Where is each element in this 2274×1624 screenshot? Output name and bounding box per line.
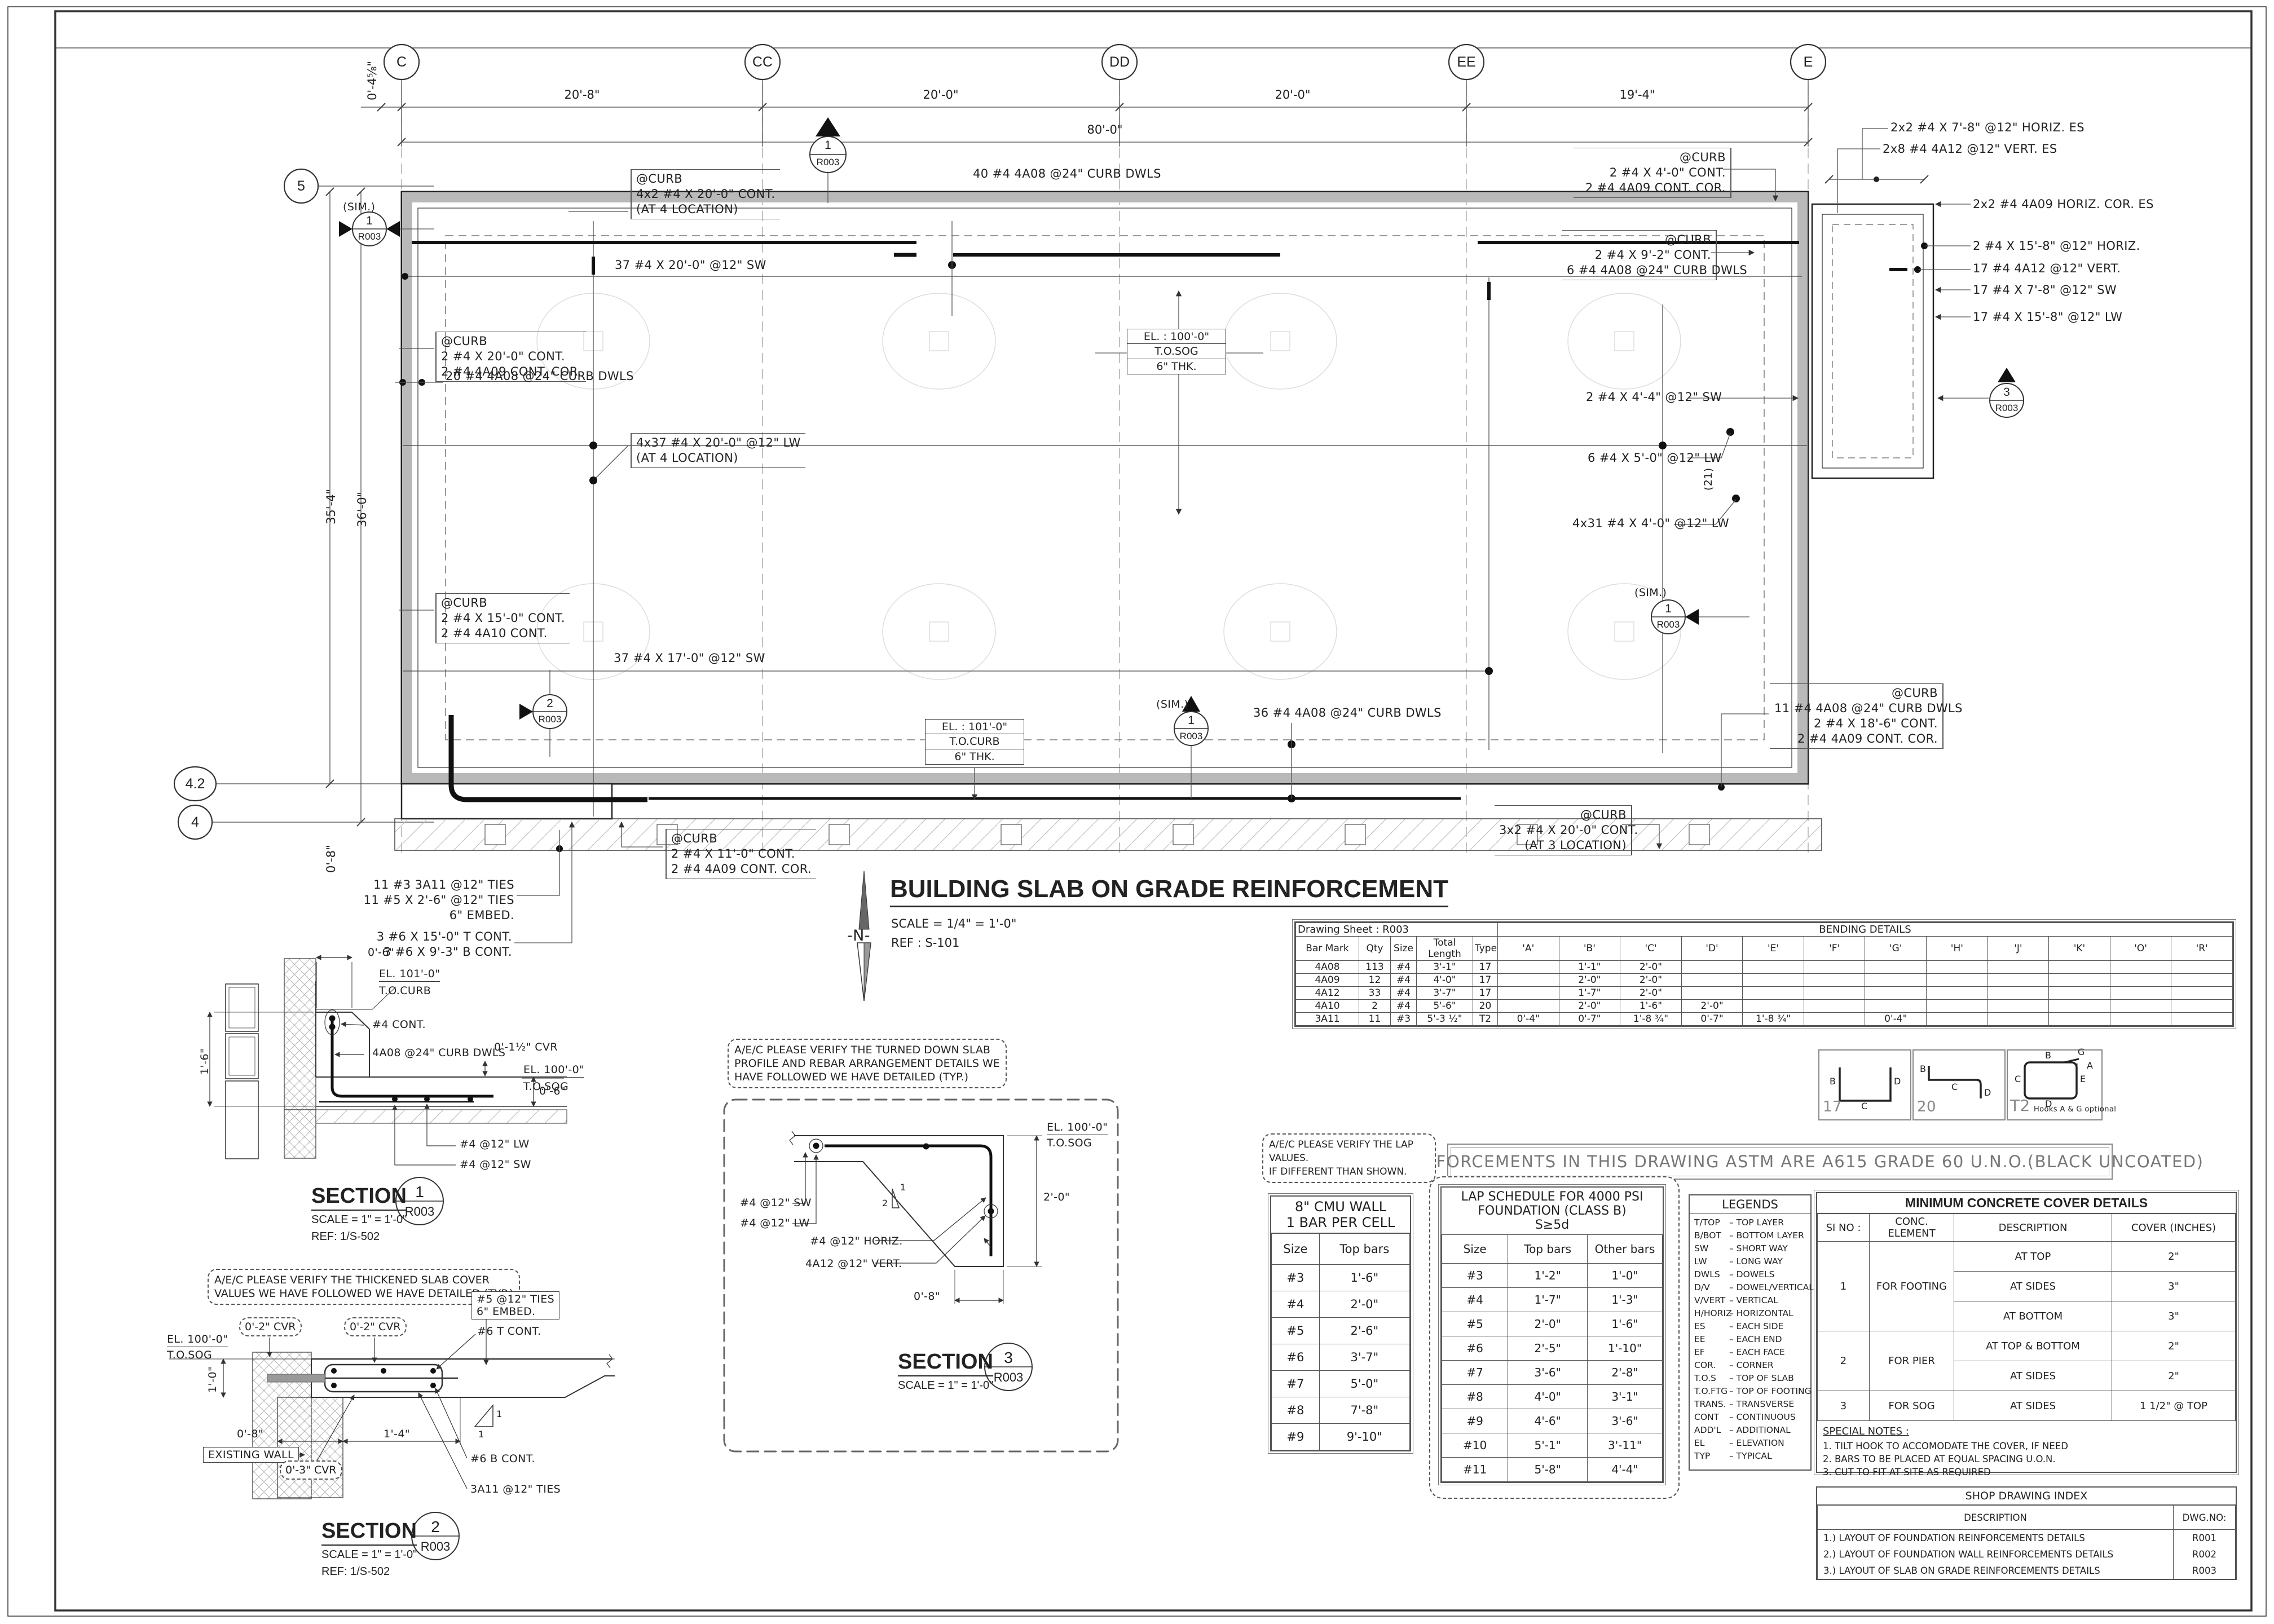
table-row: #42'-0" <box>1272 1291 1410 1318</box>
special-notes-list: 1. TILT HOOK TO ACCOMODATE THE COVER, IF… <box>1823 1440 2230 1479</box>
el-tocurb-box: EL. : 101'-0"T.O.CURB6" THK. <box>925 720 1024 765</box>
s1-dwls: 4A08 @24" CURB DWLS <box>372 1047 505 1059</box>
dim-bay-4: 19'-4" <box>1603 88 1671 101</box>
bend20-d: D <box>1984 1087 1991 1098</box>
table-row: #63'-7" <box>1272 1344 1410 1371</box>
s3-cloud-note: A/E/C PLEASE VERIFY THE TURNED DOWN SLAB… <box>728 1039 1007 1088</box>
note-sw-17: 17 #4 X 7'-8" @12" SW <box>1973 283 2117 297</box>
bending-header-cell: 'A' <box>1498 937 1559 961</box>
section1-num: 1 <box>412 1183 428 1201</box>
column-marks <box>537 293 1681 679</box>
s2-tcont: #6 T CONT. <box>477 1325 541 1338</box>
bend17-d: D <box>1894 1076 1901 1087</box>
s2-el2: T.O.SOG <box>167 1349 212 1361</box>
list-item: CONT– CONTINUOUS <box>1694 1411 1806 1424</box>
list-item: EF– EACH FACE <box>1694 1346 1806 1359</box>
flag-sim-l-num: 1 <box>362 214 377 228</box>
flag2-num: 2 <box>542 697 558 710</box>
note-curb-bottom: @CURB3x2 #4 X 20'-0" CONT.(AT 3 LOCATION… <box>1495 805 1632 855</box>
note-curb-top-left: @CURB4x2 #4 X 20'-0" CONT.(AT 4 LOCATION… <box>631 169 780 219</box>
table-row: #84'-0"3'-1" <box>1442 1385 1663 1409</box>
bendt2-e: E <box>2080 1074 2086 1084</box>
table-row: 2.) LAYOUT OF FOUNDATION WALL REINFORCEM… <box>1818 1546 2236 1563</box>
list-item: T/TOP– TOP LAYER <box>1694 1216 1806 1229</box>
list-item: V/VERT– VERTICAL <box>1694 1294 1806 1307</box>
note-curb-bottom-right: @CURB11 #4 4A08 @24" CURB DWLS2 #4 X 18'… <box>1770 683 1944 749</box>
s2-cvr-c: 0'-3" CVR <box>280 1460 342 1480</box>
table-row: #41'-7"1'-3" <box>1442 1288 1663 1312</box>
table-row: #52'-0"1'-6" <box>1442 1312 1663 1336</box>
flag-sim-r-num: 1 <box>1660 602 1676 616</box>
lap-cloud-note: A/E/C PLEASE VERIFY THE LAP VALUES.IF DI… <box>1262 1133 1436 1183</box>
list-item: ADD'L– ADDITIONAL <box>1694 1424 1806 1437</box>
dim-overall: 80'-0" <box>1071 123 1139 136</box>
table-row: #62'-5"1'-10" <box>1442 1336 1663 1361</box>
s2-cvr-b: 0'-2" CVR <box>344 1317 407 1336</box>
grid-label-dd: DD <box>1103 54 1136 70</box>
table-row: 1FOR FOOTINGAT TOP2" <box>1818 1242 2236 1272</box>
bending-sheet-label: Drawing Sheet : R003 <box>1296 923 1498 937</box>
cmu-body: #31'-6"#42'-0"#52'-6"#63'-7"#75'-0"#87'-… <box>1272 1265 1410 1450</box>
legends-title: LEGENDS <box>1690 1195 1810 1214</box>
flag-sim-l-sheet: R003 <box>350 231 389 242</box>
cover-header-row: SI NO :CONC. ELEMENTDESCRIPTIONCOVER (IN… <box>1818 1214 2236 1242</box>
note-lw-17: 17 #4 X 15'-8" @12" LW <box>1973 310 2122 324</box>
bending-header-cell: 'G' <box>1865 937 1927 961</box>
pier-bumpout <box>1812 204 1933 478</box>
list-item: 3. CUT TO FIT AT SITE AS REQUIRED <box>1823 1466 2230 1479</box>
bendt2-d: D <box>2045 1098 2052 1109</box>
reinforcement-banner: ALL REINFORCEMENTS IN THIS DRAWING ASTM … <box>1447 1144 2113 1180</box>
note-vert-es: 2x8 #4 4A12 @12" VERT. ES <box>1883 142 2057 156</box>
flag1-sheet: R003 <box>808 157 848 168</box>
section3-title: SECTION <box>898 1350 993 1376</box>
s2-existing-wall: EXISTING WALL <box>203 1447 299 1463</box>
list-item: EL– ELEVATION <box>1694 1437 1806 1450</box>
bending-header-row: Bar MarkQtySizeTotal LengthType'A''B''C'… <box>1296 937 2233 961</box>
note-curb-left-2: @CURB2 #4 X 15'-0" CONT.2 #4 4A10 CONT. <box>435 593 570 643</box>
lap-body: #31'-2"1'-0"#41'-7"1'-3"#52'-0"1'-6"#62'… <box>1442 1264 1663 1482</box>
note-curb-dowels-left: 20 #4 4A08 @24" CURB DWLS <box>446 369 634 383</box>
cmu-header-row: SizeTop bars <box>1272 1234 1410 1265</box>
dim-bay-3: 20'-0" <box>1259 88 1326 101</box>
north-label: -N- <box>847 927 870 945</box>
note-ties-bottom-left: 11 #3 3A11 @12" TIES11 #5 X 2'-6" @12" T… <box>351 877 514 923</box>
dim-bay-1: 20'-8" <box>548 88 616 101</box>
note-sim-right: (SIM.) <box>1634 586 1667 599</box>
s3-dim-v: 2'-0" <box>1043 1191 1070 1203</box>
note-sw-2: 2 #4 X 4'-4" @12" SW <box>1586 390 1722 404</box>
table-row: 4A08113#43'-1"171'-1"2'-0" <box>1296 961 2233 974</box>
s2-bcont: #6 B CONT. <box>470 1453 535 1465</box>
shop-header-row: DESCRIPTIONDWG.NO: <box>1818 1506 2236 1530</box>
note-curb-bottom-left: @CURB2 #4 X 11'-0" CONT.2 #4 4A09 CONT. … <box>666 829 816 879</box>
bending-header-cell: 'E' <box>1743 937 1804 961</box>
flag-sim-b-num: 1 <box>1183 714 1199 727</box>
bend20-b: B <box>1920 1063 1926 1074</box>
table-row: #94'-6"3'-6" <box>1442 1409 1663 1433</box>
s1-el-sog: EL. 100'-0" <box>523 1063 584 1078</box>
section2-title: SECTION <box>321 1519 417 1546</box>
list-item: B/BOT– BOTTOM LAYER <box>1694 1229 1806 1242</box>
dim-left-3: 0'-8" <box>324 845 338 873</box>
table-row: #31'-6" <box>1272 1265 1410 1291</box>
section3-linework <box>724 1100 1118 1451</box>
bendt2-b: B <box>2045 1050 2051 1061</box>
special-notes-title: SPECIAL NOTES : <box>1823 1426 2230 1437</box>
bend-20-label: 20 <box>1917 1098 1936 1115</box>
bending-header-cell: Bar Mark <box>1296 937 1359 961</box>
bending-header-cell: 'B' <box>1559 937 1620 961</box>
s3-lw: #4 @12" LW <box>740 1217 810 1229</box>
list-item: LW– LONG WAY <box>1694 1255 1806 1268</box>
table-row: #73'-6"2'-8" <box>1442 1361 1663 1385</box>
table-row: 1.) LAYOUT OF FOUNDATION REINFORCEMENTS … <box>1818 1530 2236 1547</box>
bending-header-cell: 'O' <box>2110 937 2171 961</box>
list-item: SW– SHORT WAY <box>1694 1242 1806 1255</box>
grid-label-c: C <box>385 54 418 70</box>
s1-bar-cont: #4 CONT. <box>372 1018 426 1031</box>
note-sw-37a: 37 #4 X 20'-0" @12" SW <box>615 258 766 272</box>
list-item: DWLS– DOWELS <box>1694 1268 1806 1281</box>
note-sw-37b: 37 #4 X 17'-0" @12" SW <box>614 651 765 665</box>
s3-slope-2: 2 <box>882 1198 888 1208</box>
s1-dim-right: 0'-6" <box>539 1085 566 1097</box>
s2-dim-h: 1'-0" <box>206 1366 219 1393</box>
bending-header-cell: 'R' <box>2171 937 2233 961</box>
cover-title: MINIMUM CONCRETE COVER DETAILS <box>1817 1193 2236 1213</box>
list-item: H/HORIZ– HORIZONTAL <box>1694 1307 1806 1320</box>
flag2-sheet: R003 <box>530 714 570 725</box>
plan-ref: REF : S-101 <box>891 936 959 950</box>
dim-left-1: 35'-4" <box>324 489 338 524</box>
s1-el-curb2: T.O.CURB <box>379 985 431 997</box>
plan-scale: SCALE = 1/4" = 1'-0" <box>891 917 1016 930</box>
list-item: COR.– CORNER <box>1694 1359 1806 1372</box>
bendt2-g: G <box>2078 1047 2085 1057</box>
bending-header-cell: Total Length <box>1417 937 1473 961</box>
list-item: T.O.FTG– TOP OF FOOTING <box>1694 1385 1806 1398</box>
dim-bay-2: 20'-0" <box>907 88 975 101</box>
bend20-c: C <box>1951 1082 1958 1092</box>
s3-sw: #4 @12" SW <box>740 1197 812 1209</box>
bending-header-cell: Qty <box>1359 937 1391 961</box>
flag1-num: 1 <box>820 139 836 152</box>
table-row: 3A1111#35'-3 ½"T20'-4"0'-7"1'-8 ¾"0'-7"1… <box>1296 1013 2233 1026</box>
note-curb-dowels-bottom: 36 #4 4A08 @24" CURB DWLS <box>1253 706 1442 720</box>
section2-sheet: R003 <box>416 1539 455 1554</box>
note-curb-top-right: @CURB2 #4 X 4'-0" CONT.2 #4 4A09 CONT. C… <box>1574 148 1731 198</box>
note-21: (21) <box>1702 467 1715 491</box>
s1-lw: #4 @12" LW <box>460 1138 530 1150</box>
s1-sw: #4 @12" SW <box>460 1158 531 1171</box>
section3-scale: SCALE = 1" = 1'-0" <box>898 1379 993 1392</box>
bend17-c: C <box>1861 1101 1868 1111</box>
grid-label-ee: EE <box>1449 54 1483 70</box>
legends-list: T/TOP– TOP LAYERB/BOT– BOTTOM LAYERSW– S… <box>1694 1214 1806 1463</box>
lap-title1: LAP SCHEDULE FOR 4000 PSI <box>1461 1190 1643 1204</box>
shop-body: 1.) LAYOUT OF FOUNDATION REINFORCEMENTS … <box>1818 1530 2236 1579</box>
section3-num: 3 <box>1001 1349 1016 1367</box>
note-sim-left: (SIM.) <box>343 201 375 213</box>
section1-ref: REF: 1/S-502 <box>311 1230 380 1243</box>
s2-dim-a: 0'-8" <box>237 1428 263 1440</box>
table-row: #115'-8"4'-4" <box>1442 1458 1663 1482</box>
s3-horiz: #4 @12" HORIZ. <box>810 1235 903 1247</box>
note-sim-bottom: (SIM.) <box>1156 698 1188 710</box>
bending-header-cell: 'D' <box>1681 937 1743 961</box>
bend17-b: B <box>1830 1076 1836 1087</box>
s3-el: EL. 100'-0" <box>1047 1121 1108 1135</box>
cover-details-table: MINIMUM CONCRETE COVER DETAILS SI NO :CO… <box>1816 1192 2237 1473</box>
dim-left-offset: 0'-4⅝" <box>365 61 379 100</box>
table-row: 3.) LAYOUT OF SLAB ON GRADE REINFORCEMEN… <box>1818 1563 2236 1579</box>
grid-label-5: 5 <box>284 178 318 195</box>
list-item: 1. TILT HOOK TO ACCOMODATE THE COVER, IF… <box>1823 1440 2230 1453</box>
note-lw-6: 6 #4 X 5'-0" @12" LW <box>1588 451 1722 465</box>
table-row: #87'-8" <box>1272 1397 1410 1424</box>
s3-slope-1: 1 <box>900 1182 906 1193</box>
s2-slope-2: 1 <box>478 1429 484 1440</box>
cmu-wall-table: 8" CMU WALL1 BAR PER CELL SizeTop bars #… <box>1270 1195 1411 1451</box>
table-row: 4A0912#44'-0"172'-0"2'-0" <box>1296 974 2233 987</box>
el-tosog-box: EL. : 100'-0"T.O.SOG6" THK. <box>1127 329 1226 374</box>
lap-schedule-table: LAP SCHEDULE FOR 4000 PSIFOUNDATION (CLA… <box>1440 1186 1664 1483</box>
page-title: BUILDING SLAB ON GRADE REINFORCEMENT <box>890 875 1448 907</box>
s1-el-curb: EL. 101'-0" <box>379 968 440 982</box>
cmu-title2: 1 BAR PER CELL <box>1286 1215 1395 1230</box>
flag3-num: 3 <box>1999 386 2015 399</box>
s2-dim-b: 1'-4" <box>384 1428 410 1440</box>
bending-details-table: Drawing Sheet : R003 BENDING DETAILS Bar… <box>1294 921 2234 1027</box>
bend-17-label: 17 <box>1823 1098 1842 1115</box>
s2-ties: #5 @12" TIES6" EMBED. <box>471 1291 559 1319</box>
section2-ref: REF: 1/S-502 <box>321 1565 390 1578</box>
note-horiz-2: 2 #4 X 15'-8" @12" HORIZ. <box>1973 239 2140 253</box>
bending-header-cell: 'J' <box>1987 937 2049 961</box>
note-horiz-es: 2x2 #4 X 7'-8" @12" HORIZ. ES <box>1890 121 2084 134</box>
bending-header-cell: 'C' <box>1620 937 1682 961</box>
table-row: #52'-6" <box>1272 1318 1410 1344</box>
drawing-sheet: C CC DD EE E 5 4.2 4 0'-4⅝" 20'-8" 20'-0… <box>0 0 2274 1624</box>
table-row: 3FOR SOGAT SIDES1 1/2" @ TOP <box>1818 1391 2236 1421</box>
s3-dim-b: 0'-8" <box>914 1290 940 1303</box>
bending-header-cell: 'H' <box>1927 937 1988 961</box>
dim-left-2: 36'-0" <box>355 492 369 527</box>
note-lw-4x31: 4x31 #4 X 4'-0" @12" LW <box>1572 517 1729 530</box>
list-item: T.O.S– TOP OF SLAB <box>1694 1372 1806 1385</box>
note-curb-dowels-top: 40 #4 4A08 @24" CURB DWLS <box>973 167 1161 180</box>
grid-label-e: E <box>1791 54 1825 70</box>
bending-header-cell: 'F' <box>1804 937 1865 961</box>
lap-title2: FOUNDATION (CLASS B) <box>1478 1204 1626 1218</box>
flag-sim-r-sheet: R003 <box>1649 619 1688 630</box>
grid-label-4: 4 <box>178 814 212 831</box>
s1-dim-left: 1'-6" <box>199 1048 211 1075</box>
bending-header-cell: 'K' <box>2049 937 2110 961</box>
flag3-sheet: R003 <box>1987 403 2026 414</box>
table-row: 2FOR PIERAT TOP & BOTTOM2" <box>1818 1331 2236 1361</box>
bendt2-a: A <box>2087 1060 2093 1071</box>
bendt2-c: C <box>2015 1074 2021 1084</box>
bending-header-cell: Type <box>1473 937 1498 961</box>
section1-title: SECTION <box>311 1184 407 1211</box>
list-item: TRANS.– TRANSVERSE <box>1694 1398 1806 1411</box>
section2-scale: SCALE = 1" = 1'-0" <box>321 1548 417 1561</box>
grid-label-cc: CC <box>746 54 779 70</box>
note-vert-17: 17 #4 4A12 @12" VERT. <box>1973 262 2121 275</box>
lap-header-row: SizeTop barsOther bars <box>1442 1235 1663 1264</box>
section1-scale: SCALE = 1" = 1'-0" <box>311 1213 407 1226</box>
shop-title: SHOP DRAWING INDEX <box>1817 1488 2236 1505</box>
note-curb-right: @CURB2 #4 X 9'-2" CONT.6 #4 4A08 @24" CU… <box>1562 230 1717 280</box>
table-row: #75'-0" <box>1272 1371 1410 1397</box>
lap-title3: S≥5d <box>1535 1218 1569 1232</box>
bend-t2-label: T2 <box>2010 1096 2030 1115</box>
s1-cvr: 0'-1½" CVR <box>494 1041 558 1053</box>
table-row: 4A102#45'-6"202'-0"1'-6"2'-0" <box>1296 1000 2233 1013</box>
s3-vert: 4A12 @12" VERT. <box>805 1257 902 1270</box>
bending-title: BENDING DETAILS <box>1498 923 2233 937</box>
s2-el: EL. 100'-0" <box>167 1333 228 1347</box>
s2-slope-1: 1 <box>496 1409 503 1419</box>
s2-cvr-a: 0'-2" CVR <box>239 1317 302 1336</box>
cmu-title1: 8" CMU WALL <box>1295 1199 1386 1215</box>
table-row: #105'-1"3'-11" <box>1442 1433 1663 1458</box>
bending-header-cell: Size <box>1391 937 1417 961</box>
bending-body: 4A08113#43'-1"171'-1"2'-0" 4A0912#44'-0"… <box>1296 961 2233 1026</box>
table-row: 4A1233#43'-7"171'-7"2'-0" <box>1296 987 2233 1000</box>
table-row: #99'-10" <box>1272 1424 1410 1450</box>
s2-ties2: 3A11 @12" TIES <box>470 1483 561 1495</box>
section2-num: 2 <box>428 1518 443 1536</box>
list-item: ES– EACH SIDE <box>1694 1320 1806 1333</box>
list-item: 2. BARS TO BE PLACED AT EQUAL SPACING U.… <box>1823 1453 2230 1466</box>
shop-drawing-index: SHOP DRAWING INDEX DESCRIPTIONDWG.NO: 1.… <box>1816 1486 2237 1580</box>
s1-dim-top: 0'-6" <box>368 946 394 959</box>
list-item: D/V– DOWEL/VERTICAL <box>1694 1281 1806 1294</box>
note-lw-4x37: 4x37 #4 X 20'-0" @12" LW(AT 4 LOCATION) <box>631 433 805 468</box>
list-item: TYP– TYPICAL <box>1694 1450 1806 1463</box>
flag-sim-b-sheet: R003 <box>1171 731 1211 742</box>
list-item: EE– EACH END <box>1694 1333 1806 1346</box>
grid-label-4-2: 4.2 <box>176 776 214 792</box>
legends-box: LEGENDS T/TOP– TOP LAYERB/BOT– BOTTOM LA… <box>1689 1194 1812 1471</box>
table-row: #31'-2"1'-0" <box>1442 1264 1663 1288</box>
s3-el2: T.O.SOG <box>1047 1137 1092 1149</box>
note-cor-es: 2x2 #4 4A09 HORIZ. COR. ES <box>1973 197 2154 211</box>
section3-sheet: R003 <box>989 1370 1028 1385</box>
